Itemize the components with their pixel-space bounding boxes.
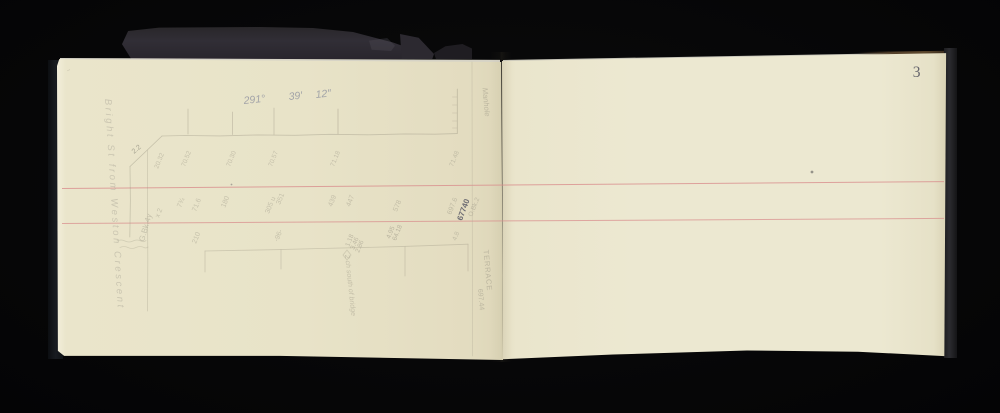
svg-text:x 2: x 2 xyxy=(154,207,164,218)
svg-text:71.48: 71.48 xyxy=(448,150,461,168)
svg-text:2 ch south of bridge: 2 ch south of bridge xyxy=(343,253,357,316)
svg-text:Bright St from Weston Crescent: Bright St from Weston Crescent xyxy=(102,99,126,311)
svg-text:291°: 291° xyxy=(242,93,266,107)
svg-text:305 u: 305 u xyxy=(264,196,277,215)
svg-text:20.32: 20.32 xyxy=(153,152,166,170)
svg-text:Manhole: Manhole xyxy=(481,87,492,116)
svg-text:71.6: 71.6 xyxy=(191,197,203,212)
svg-text:447: 447 xyxy=(345,194,356,208)
svg-text:7¾: 7¾ xyxy=(176,197,186,209)
svg-text:180: 180 xyxy=(220,195,231,209)
svg-text:70.30: 70.30 xyxy=(225,150,238,168)
svg-text:71.18: 71.18 xyxy=(329,150,342,168)
svg-text:697.44: 697.44 xyxy=(476,289,485,311)
svg-text:2.2: 2.2 xyxy=(131,144,143,156)
svg-text:G.Bk.4y: G.Bk.4y xyxy=(137,213,153,243)
svg-text:~: ~ xyxy=(66,67,73,75)
svg-text:578: 578 xyxy=(392,199,403,213)
svg-text:-96-: -96- xyxy=(273,228,284,243)
svg-text:39′: 39′ xyxy=(288,90,304,103)
svg-text:70.52: 70.52 xyxy=(180,150,193,168)
svg-text:O.Bk.2: O.Bk.2 xyxy=(467,196,481,217)
svg-text:3: 3 xyxy=(913,64,921,81)
svg-text:439: 439 xyxy=(327,194,338,208)
svg-text:70.57: 70.57 xyxy=(267,150,280,168)
svg-text:210: 210 xyxy=(191,231,202,245)
svg-text:12″: 12″ xyxy=(315,87,333,101)
svg-text:4.8: 4.8 xyxy=(451,230,461,241)
svg-text:64.18: 64.18 xyxy=(391,224,404,242)
svg-text:TERRACE: TERRACE xyxy=(482,249,495,291)
svg-text:351: 351 xyxy=(275,192,286,206)
